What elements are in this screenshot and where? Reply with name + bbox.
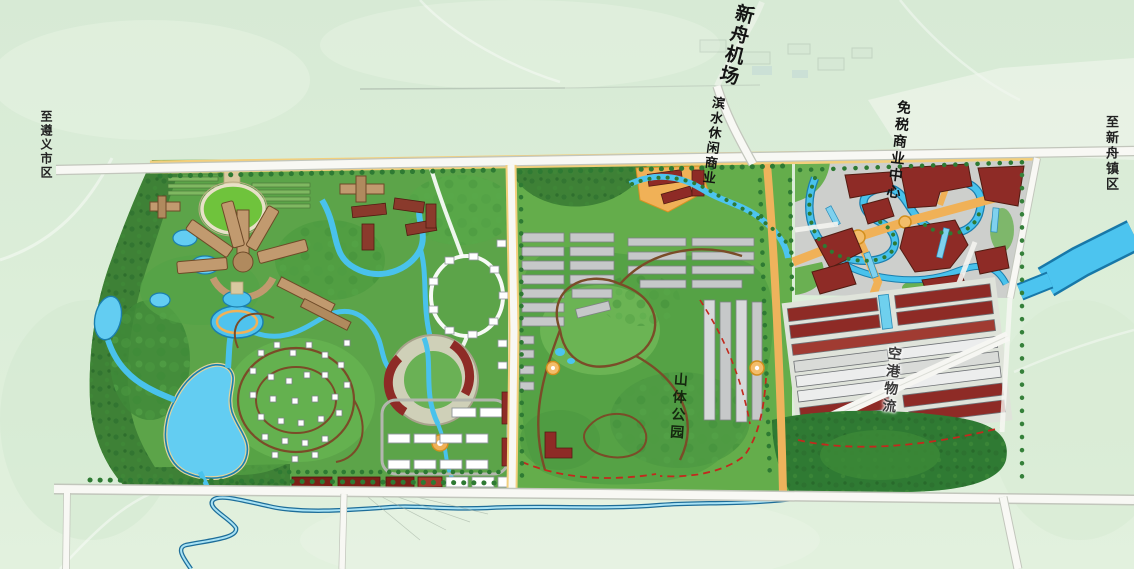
- resort-park-area: [90, 158, 515, 492]
- label-to-zunyi-city: 至遵义市区: [40, 110, 52, 180]
- southeast-forest: [772, 411, 1007, 492]
- master-plan-map: 新舟机场 滨水休闲商业 免税商业中心 至遵义市区 至新舟镇区 山体公园 空港物流: [0, 0, 1134, 569]
- label-to-xinzhou-town: 至新舟镇区: [1104, 115, 1117, 193]
- mountain-park-area: [512, 161, 792, 492]
- map-canvas: [0, 0, 1134, 569]
- duty-free-commercial-area: [793, 157, 1036, 298]
